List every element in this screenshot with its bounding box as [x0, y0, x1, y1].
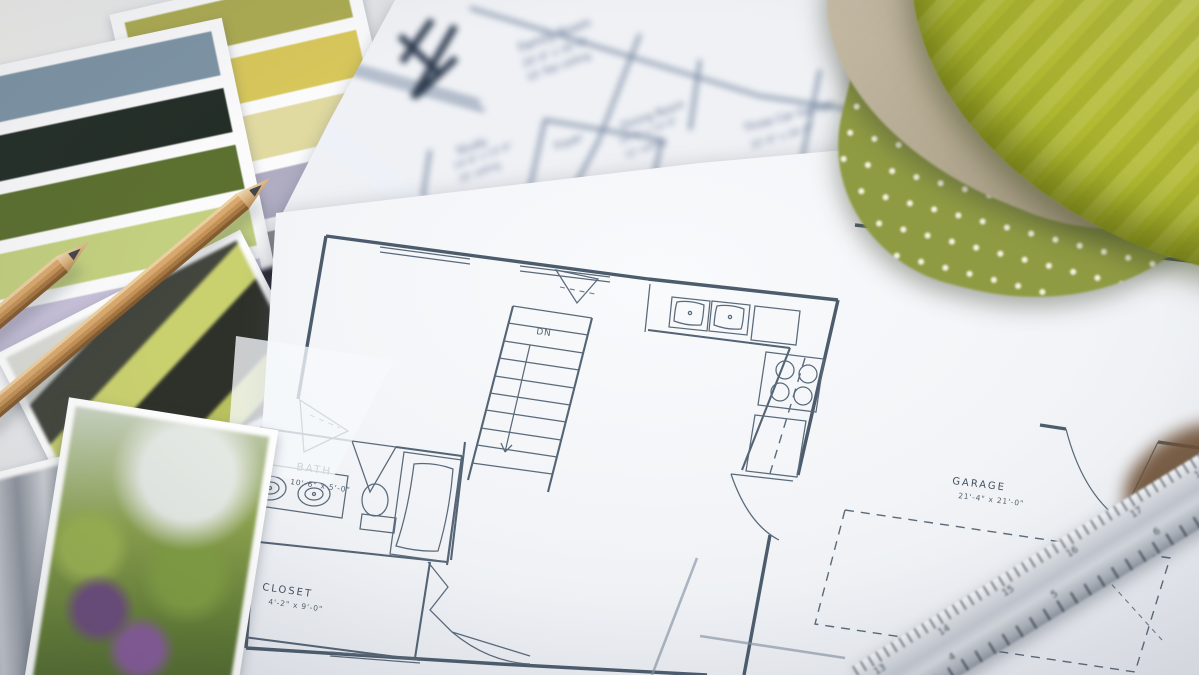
wall-break-zigzag: [428, 562, 452, 632]
closet-dims: 4'-2" x 9'-0": [268, 597, 324, 614]
bath-label: BATH: [296, 461, 333, 478]
garage-dims: 21'-4" x 21'-0": [958, 491, 1025, 508]
photo-flowers-print: [24, 397, 279, 675]
toilet: [362, 484, 388, 516]
designer-desk-scene: Family Room 20'-0" x 16'-0" 10' flat cei…: [0, 0, 1199, 675]
refrigerator: [746, 415, 806, 477]
staircase: DN: [468, 306, 592, 492]
window-symbols: [330, 247, 610, 663]
bath-dims: 10'-6" x 5'-0": [290, 477, 351, 494]
garage-area: GARAGE 21'-4" x 21'-0": [952, 476, 1025, 508]
stairs-dn-label: DN: [536, 327, 553, 339]
kitchen: [645, 284, 824, 540]
hall-door: [300, 400, 465, 560]
dishwasher: [751, 306, 800, 345]
